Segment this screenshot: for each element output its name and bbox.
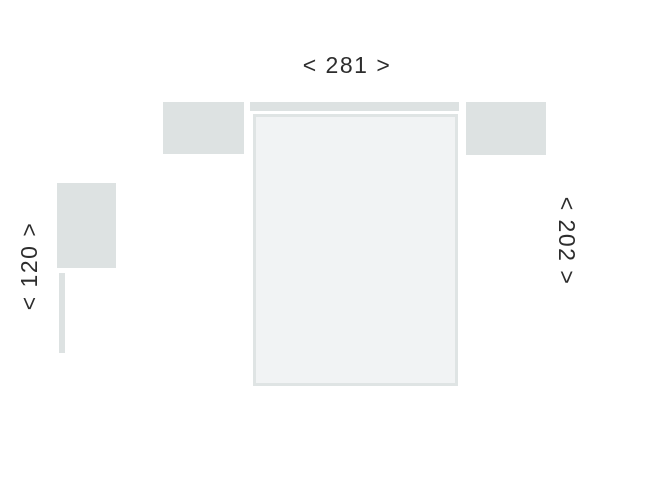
height-dimension-label: < 202 > (554, 193, 580, 289)
left-seat-block (57, 183, 116, 268)
right-armrest-block (466, 102, 546, 155)
left-thin-bar (59, 273, 65, 353)
left-armrest-block (163, 102, 244, 154)
backrest-bar (250, 102, 459, 111)
width-dimension-label: < 281 > (243, 52, 451, 78)
bed-mattress (253, 114, 458, 386)
side-dimension-label: < 120 > (16, 218, 42, 314)
furniture-dimension-diagram: < 281 > < 120 > < 202 > (0, 0, 650, 488)
